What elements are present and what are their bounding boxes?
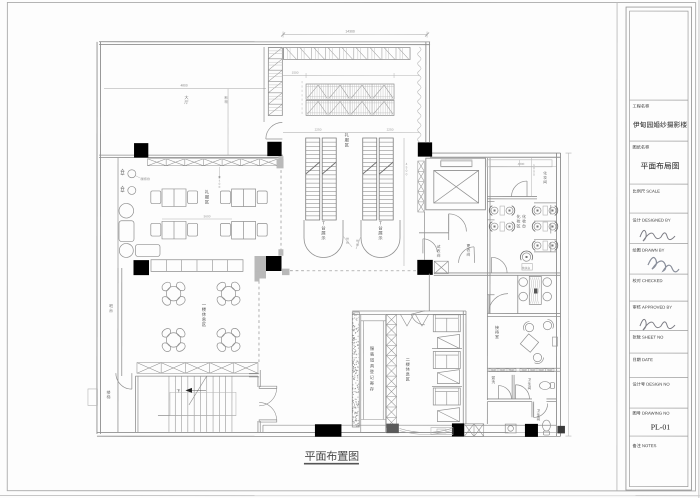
- svg-text:试衣间: 试衣间: [437, 244, 441, 258]
- svg-text:伊甸园婚纱摄影楼: 伊甸园婚纱摄影楼: [633, 121, 688, 129]
- svg-text:梳妆台: 梳妆台: [522, 266, 531, 270]
- svg-text:更衣间: 更衣间: [466, 244, 470, 257]
- svg-text:平面布置图: 平面布置图: [304, 450, 359, 463]
- svg-text:图纸名称: 图纸名称: [633, 145, 651, 150]
- svg-text:接待室: 接待室: [495, 325, 499, 339]
- svg-text:礼服区: 礼服区: [205, 189, 210, 204]
- svg-text:设计 DESIGNED BY: 设计 DESIGNED BY: [633, 218, 671, 223]
- svg-text:卫生间: 卫生间: [537, 409, 541, 421]
- svg-text:吧台: 吧台: [109, 303, 113, 313]
- svg-text:2250: 2250: [315, 128, 322, 132]
- svg-text:4800: 4800: [518, 162, 525, 166]
- svg-text:张数 SHEET NO: 张数 SHEET NO: [632, 335, 664, 340]
- svg-text:4800: 4800: [180, 83, 187, 87]
- svg-text:下: 下: [176, 389, 180, 393]
- svg-text:卫生间: 卫生间: [528, 378, 532, 390]
- svg-text:设计号 DESIGN NO: 设计号 DESIGN NO: [632, 382, 670, 387]
- svg-text:日期 DATE: 日期 DATE: [632, 357, 653, 362]
- svg-text:绘图 DRAWN BY: 绘图 DRAWN BY: [632, 248, 664, 253]
- svg-text:1500: 1500: [292, 71, 299, 75]
- svg-text:服装道具登记寄存: 服装道具登记寄存: [370, 346, 375, 392]
- svg-text:审核 APPROVED BY: 审核 APPROVED BY: [632, 305, 672, 310]
- svg-text:礼服区: 礼服区: [345, 132, 350, 147]
- svg-text:化妆区: 化妆区: [517, 214, 521, 228]
- svg-text:楼梯: 楼梯: [106, 390, 110, 400]
- svg-text:图号 DRAWING NO: 图号 DRAWING NO: [632, 411, 670, 416]
- svg-text:一楼休息区: 一楼休息区: [202, 302, 207, 327]
- svg-text:工程名称: 工程名称: [633, 104, 651, 109]
- svg-text:PL-01: PL-01: [651, 423, 671, 432]
- svg-text:平面布局图: 平面布局图: [641, 162, 680, 171]
- svg-text:备注 NOTES: 备注 NOTES: [632, 443, 656, 448]
- svg-text:3600: 3600: [204, 214, 211, 218]
- svg-text:4500: 4500: [406, 162, 408, 176]
- svg-text:二楼休息区: 二楼休息区: [406, 357, 411, 382]
- svg-text:盥洗: 盥洗: [491, 376, 495, 384]
- svg-text:服务台: 服务台: [141, 177, 151, 181]
- svg-text:2250: 2250: [387, 128, 394, 132]
- svg-text:校对 CHECKED: 校对 CHECKED: [632, 278, 662, 283]
- svg-text:14300: 14300: [345, 29, 355, 33]
- svg-text:化妆间: 化妆间: [543, 171, 547, 185]
- svg-text:比例尺 SCALE: 比例尺 SCALE: [633, 189, 661, 194]
- svg-text:化妆台: 化妆台: [522, 214, 526, 228]
